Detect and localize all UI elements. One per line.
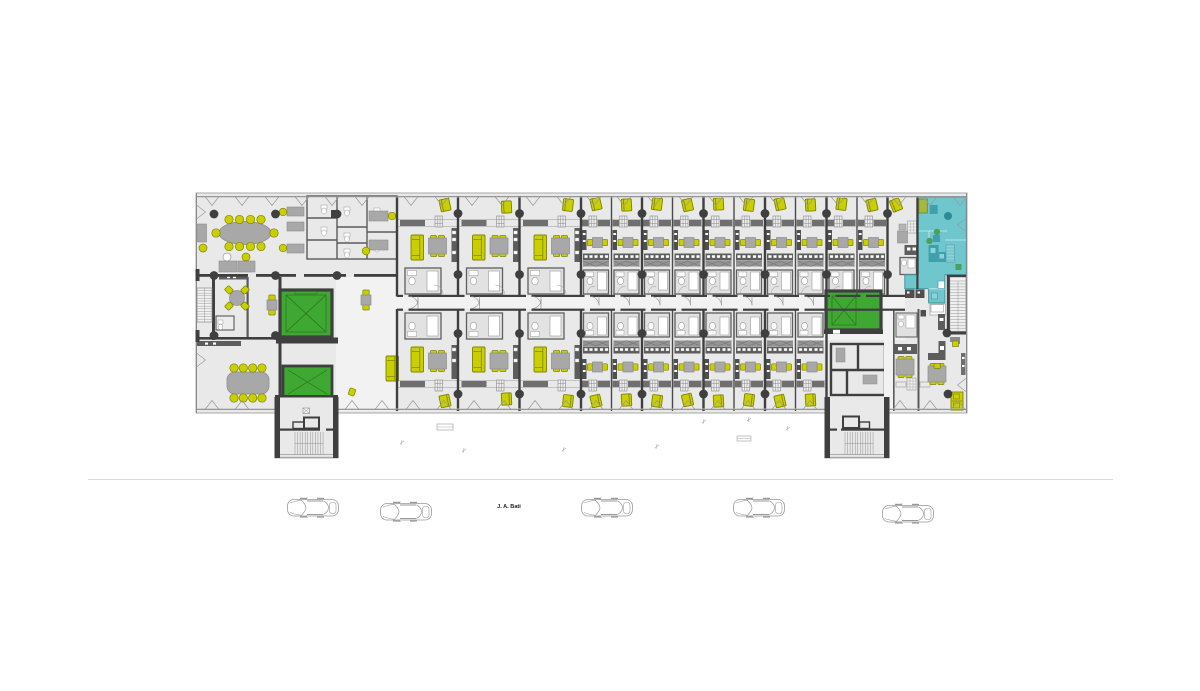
svg-text:J. A. Bati: J. A. Bati [497,504,521,510]
